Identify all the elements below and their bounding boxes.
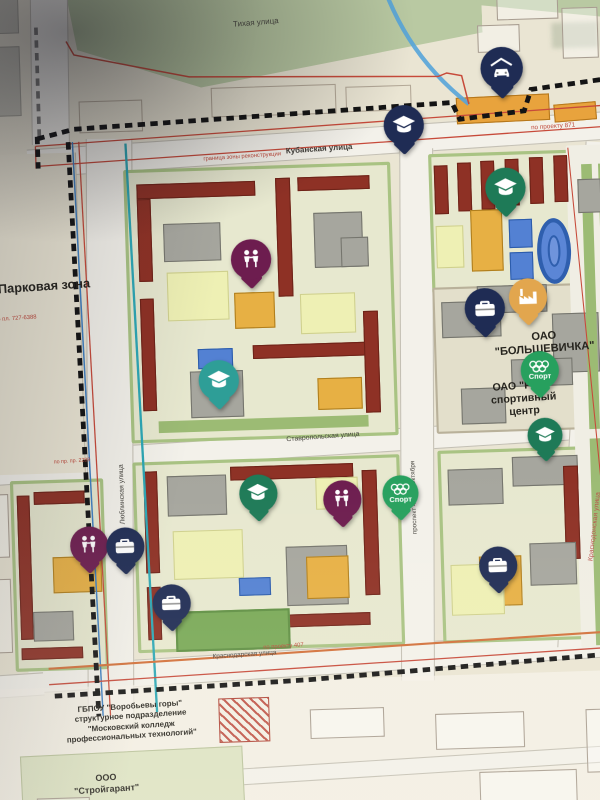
building-outline (211, 84, 337, 118)
map-pin-graduation-cap (383, 104, 425, 146)
masterplan-map: Тихая улица Кубанская улица Ставропольск… (0, 0, 600, 800)
map-pin-briefcase (479, 546, 518, 585)
building-school (306, 555, 350, 599)
building (577, 178, 600, 213)
building-hatched (218, 697, 270, 743)
building-outline (585, 708, 600, 773)
map-pin-graduation-cap (239, 474, 278, 513)
building (0, 0, 19, 35)
building (33, 611, 74, 642)
map-pin-graduation-cap (527, 417, 563, 453)
building-residential (457, 162, 472, 211)
building-residential (363, 311, 381, 413)
building-outline (310, 707, 385, 739)
map-pin-sport-rings: Спорт (520, 351, 559, 390)
map-pin-briefcase (464, 288, 506, 330)
courtyard (436, 225, 465, 268)
map-pin-children (230, 239, 272, 281)
building-residential (529, 157, 544, 204)
building (0, 46, 22, 117)
map-pin-graduation-cap (485, 167, 527, 209)
map-pin-factory (508, 278, 547, 317)
building (447, 468, 503, 506)
building-outline (435, 711, 525, 750)
building-residential (137, 199, 153, 282)
map-pin-car-garage (480, 46, 524, 90)
building-outline (0, 494, 10, 558)
building-residential (553, 155, 568, 202)
building (163, 222, 221, 262)
map-pin-children (70, 526, 109, 565)
building-outline (479, 769, 578, 800)
building-planned (553, 101, 597, 123)
pin-label: Спорт (529, 373, 552, 381)
sport-court (509, 219, 533, 248)
building (167, 474, 228, 516)
courtyard (167, 271, 230, 322)
building (340, 237, 368, 268)
sport-court (510, 252, 534, 280)
building-school (470, 209, 504, 271)
forest-park-area (9, 0, 484, 97)
building-outline (496, 0, 558, 21)
map-pin-children (323, 480, 362, 519)
pin-label: Спорт (389, 496, 412, 504)
map-pin-graduation-cap (198, 360, 240, 402)
sport-court (239, 577, 271, 596)
map-photo: Тихая улица Кубанская улица Ставропольск… (0, 0, 600, 800)
park-zone-area (0, 153, 86, 476)
building-outline (79, 100, 144, 134)
map-pin-briefcase (152, 584, 191, 623)
building-school (234, 292, 275, 329)
building (529, 542, 577, 586)
map-pin-briefcase (106, 527, 145, 566)
building-school (317, 377, 362, 410)
courtyard (173, 529, 244, 580)
building-outline (0, 579, 13, 654)
building-residential (21, 647, 83, 661)
building-residential (297, 175, 369, 191)
building-residential (434, 165, 449, 214)
map-pin-sport-rings: Спорт (382, 475, 419, 512)
road-park-west (30, 0, 70, 145)
courtyard (300, 292, 356, 334)
building-outline (561, 7, 599, 59)
building-residential (34, 491, 85, 505)
